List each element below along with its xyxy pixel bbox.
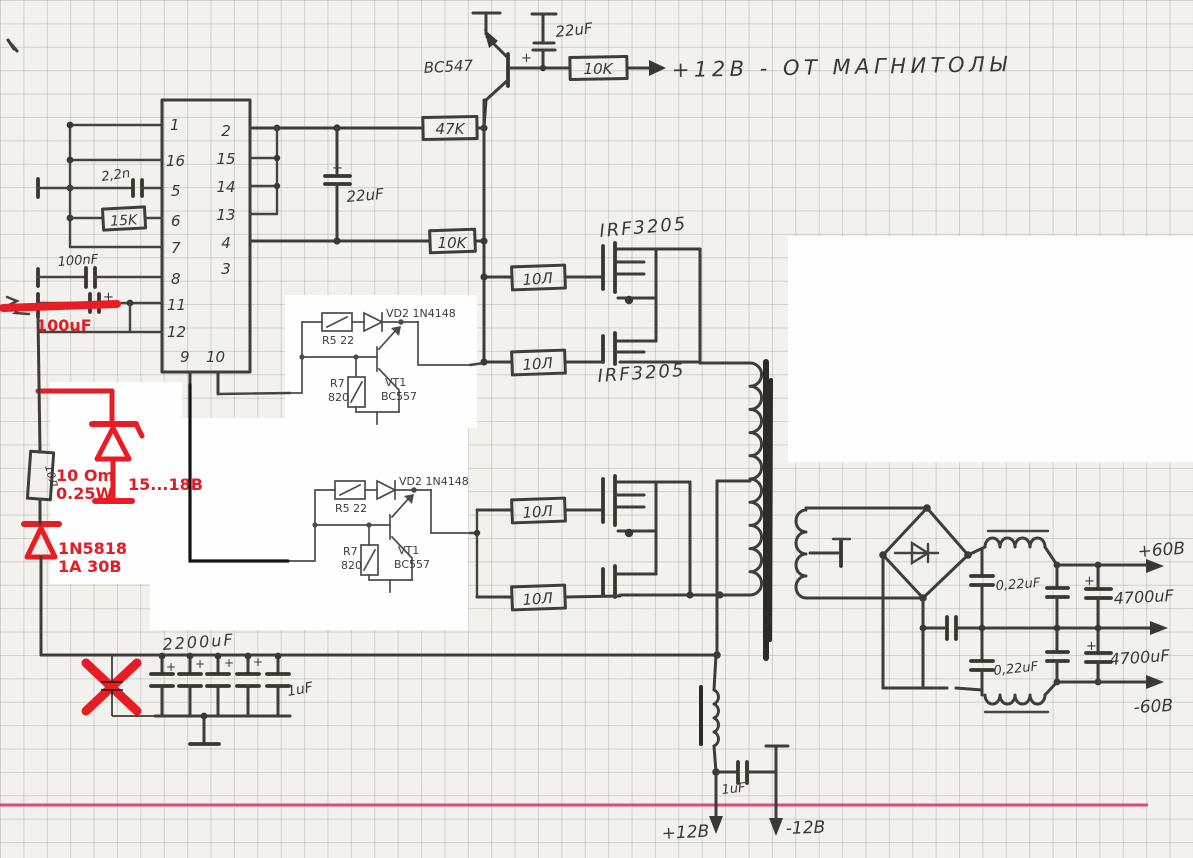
label-d1-r7: R7 — [330, 377, 345, 390]
label-top-cap: 22uF — [555, 19, 594, 41]
secondary-winding — [796, 510, 806, 598]
label-top-10k: 10K — [584, 60, 614, 78]
label-aux-1uf: 1uF — [721, 780, 747, 797]
label-d2-vt1: VT1 — [398, 544, 419, 557]
label-d1-vt1: VT1 — [385, 376, 406, 389]
plus-sign-bank4: + — [253, 655, 263, 669]
label-gate-res-4: 10Л — [522, 589, 554, 609]
label-plus60: +60В — [1137, 539, 1186, 562]
ic-pin-7: 7 — [171, 239, 181, 257]
label-gate-res-1: 10Л — [522, 269, 554, 289]
label-022-top: 0,22uF — [995, 576, 1041, 594]
label-d1-820: 820 — [328, 391, 349, 404]
white-patch-topright — [788, 236, 1193, 462]
label-timing-cap: 2,2n — [100, 166, 131, 185]
label-d2-r5: R5 22 — [335, 502, 367, 515]
ic-pin-4: 4 — [221, 234, 231, 252]
label-fb-10k: 10K — [438, 234, 468, 252]
ic-pin-5: 5 — [171, 182, 181, 200]
pwm-ic: 1 16 5 6 7 8 11 12 2 15 14 13 4 3 9 10 — [162, 100, 250, 394]
ic-pin-13: 13 — [216, 206, 235, 224]
arrow-right-icon — [1150, 621, 1168, 635]
plus-sign-4700-top: + — [1084, 574, 1095, 589]
white-patch-driver2 — [150, 418, 468, 630]
label-4700-bottom: 4700uF — [1109, 646, 1171, 669]
ic-pin-8: 8 — [171, 270, 181, 288]
ic-pin-11: 11 — [167, 296, 186, 314]
choke-bottom — [985, 695, 1045, 704]
plus-sign-bank2: + — [195, 657, 205, 671]
label-47k: 47K — [436, 120, 466, 138]
label-irf3205-top: IRF3205 — [599, 213, 688, 242]
plus-sign-top-cap: + — [521, 51, 532, 66]
ic-pin-14: 14 — [216, 178, 235, 196]
aux-12v-branch: 1uF +12В -12В — [661, 655, 825, 844]
left-series-branch: 10Л — [27, 316, 60, 655]
label-schottky: 1N5818 — [58, 539, 127, 558]
label-2200uf: 2200uF — [162, 630, 235, 654]
label-schottky-rating: 1A 30В — [58, 557, 122, 576]
label-4700-top: 4700uF — [1113, 586, 1175, 608]
ic-pin-1: 1 — [170, 116, 180, 134]
white-patches — [50, 236, 1193, 630]
label-d1-vd2: VD2 1N4148 — [386, 307, 456, 320]
label-top-transistor: BC547 — [423, 56, 474, 77]
ic-pin-10: 10 — [206, 348, 225, 366]
arrow-right-icon — [649, 60, 666, 76]
ic-left-network: 2,2n 15K 100nF + — [7, 122, 162, 332]
ic-pin-2: 2 — [221, 122, 231, 140]
label-zener-voltage: 15...18В — [128, 475, 203, 494]
cap-bank-caps: + + + + 1uF — [151, 655, 315, 716]
primary-winding — [750, 363, 762, 595]
ic-pin-16: 16 — [166, 152, 185, 170]
aux-choke — [714, 690, 718, 746]
label-bank-1uf: 1uF — [286, 680, 315, 700]
top-supply-branch: BC547 + 22uF 10K +12В - ОТ МАГНИТОЛЫ — [423, 13, 1011, 132]
arrow-right-icon — [1146, 675, 1164, 689]
label-minus60: -60В — [1133, 696, 1173, 718]
plus-sign-bank1: + — [166, 660, 176, 674]
ic-pin-15: 15 — [216, 150, 235, 168]
label-d1-bc557: BC557 — [381, 390, 417, 403]
schematic-page: BC547 + 22uF 10K +12В - ОТ МАГНИТОЛЫ 1 1… — [0, 0, 1193, 858]
label-gate-res-2: 10Л — [522, 354, 554, 374]
label-timing-res: 15K — [110, 212, 140, 229]
label-series-res: 10 Om — [56, 466, 114, 485]
choke-top — [985, 538, 1045, 547]
schematic-drawing: BC547 + 22uF 10K +12В - ОТ МАГНИТОЛЫ 1 1… — [0, 0, 1193, 858]
plus-sign-bank3: + — [224, 656, 234, 670]
label-d2-bc557: BC557 — [394, 558, 430, 571]
label-d2-820: 820 — [341, 559, 362, 572]
label-plus12-stereo: +12В - ОТ МАГНИТОЛЫ — [672, 52, 1012, 82]
label-red-100uf: 100uF — [36, 316, 92, 335]
red-strike — [3, 304, 117, 308]
mosfet-pair-2: 10Л 10Л — [474, 476, 724, 610]
label-irf3205-bottom: IRF3205 — [597, 360, 686, 387]
label-022-bottom: 0,22uF — [993, 659, 1040, 679]
ic-pin-6: 6 — [171, 212, 181, 230]
label-fb-22uf: 22uF — [346, 185, 385, 206]
arrow-down-icon — [709, 816, 723, 834]
ic-pin-12: 12 — [167, 323, 186, 341]
label-minus12: -12В — [785, 818, 825, 839]
label-d2-r7: R7 — [343, 545, 358, 558]
bulk-cap-bank: 2200uF + + — [41, 630, 717, 744]
plus-sign-4700-bottom: + — [1086, 639, 1097, 654]
ic-pin-3: 3 — [221, 260, 231, 278]
label-d1-r5: R5 22 — [322, 334, 354, 347]
plus-sign-fb-cap: + — [332, 161, 343, 176]
label-100nf: 100nF — [57, 252, 99, 270]
mosfet-pair-1: IRF3205 10Л 10Л IRF3205 — [480, 213, 700, 387]
pencil-smudge — [8, 40, 17, 51]
label-d2-vd2: VD2 1N4148 — [399, 475, 469, 488]
arrow-down-icon — [769, 818, 783, 836]
ic-pin-9: 9 — [180, 348, 190, 366]
label-gate-res-3: 10Л — [522, 502, 554, 522]
label-plus12: +12В — [661, 822, 710, 844]
label-series-res-power: 0.25W — [56, 484, 113, 503]
